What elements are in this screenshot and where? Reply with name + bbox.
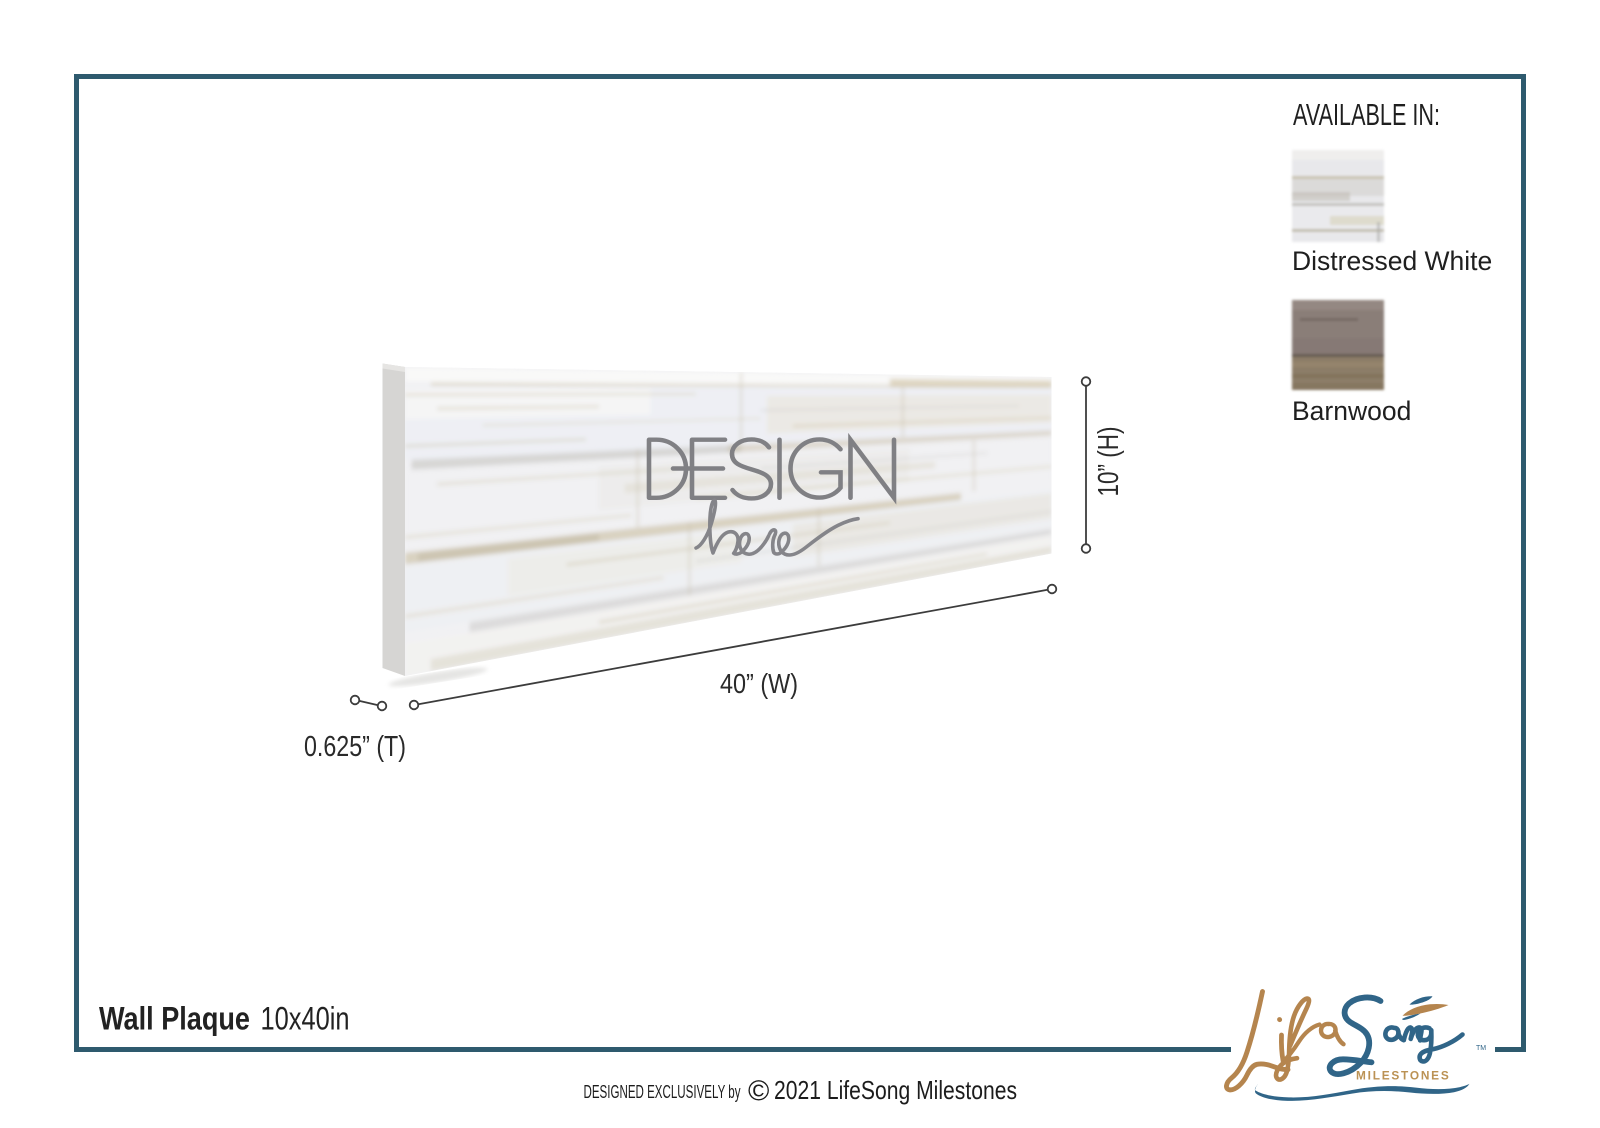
- svg-text:10x40in: 10x40in: [261, 1001, 350, 1037]
- svg-text:Wall Plaque: Wall Plaque: [99, 1001, 250, 1037]
- svg-text:0.625” (T): 0.625” (T): [304, 731, 406, 763]
- svg-text:Distressed White: Distressed White: [1292, 246, 1492, 276]
- svg-text:DESIGNED EXCLUSIVELY by: DESIGNED EXCLUSIVELY by: [584, 1081, 741, 1102]
- svg-text:Barnwood: Barnwood: [1292, 396, 1411, 426]
- svg-text:MILESTONES: MILESTONES: [1356, 1069, 1451, 1083]
- svg-text:AVAILABLE IN:: AVAILABLE IN:: [1293, 97, 1440, 132]
- svg-text:TM: TM: [1476, 1045, 1486, 1052]
- svg-text:©: ©: [748, 1076, 769, 1108]
- svg-text:2021 LifeSong Milestones: 2021 LifeSong Milestones: [774, 1075, 1017, 1105]
- svg-text:40” (W): 40” (W): [720, 668, 798, 699]
- svg-text:10” (H): 10” (H): [1093, 427, 1125, 497]
